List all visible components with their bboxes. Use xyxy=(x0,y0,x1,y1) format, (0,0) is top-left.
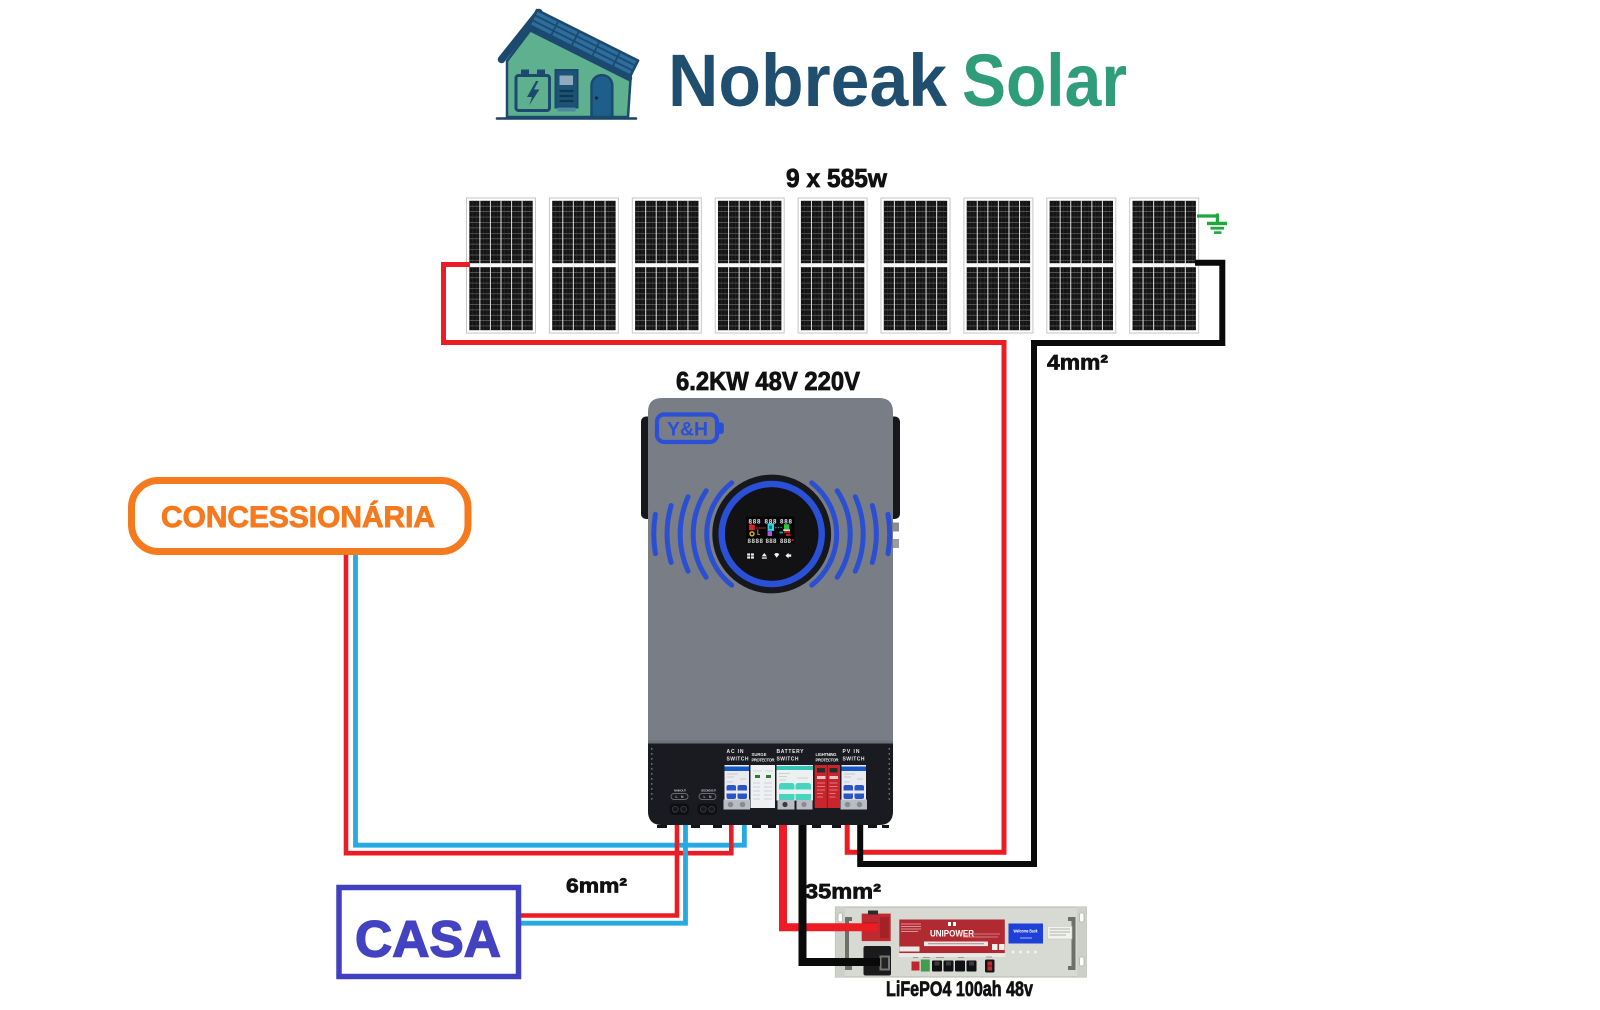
svg-text:6mm²: 6mm² xyxy=(566,876,627,898)
svg-text:4mm²: 4mm² xyxy=(1047,352,1108,375)
svg-text:CASA: CASA xyxy=(355,911,501,968)
svg-text:Nobreak: Nobreak xyxy=(668,39,948,122)
svg-text:PROTECTOR: PROTECTOR xyxy=(752,758,775,763)
svg-text:8888: 8888 xyxy=(748,538,764,545)
svg-text:SECOND OUT: SECOND OUT xyxy=(701,789,716,793)
svg-text:Solar: Solar xyxy=(962,39,1127,122)
svg-text:CONCESSIONÁRIA: CONCESSIONÁRIA xyxy=(161,500,435,534)
svg-text:LiFePO4 100ah 48v: LiFePO4 100ah 48v xyxy=(886,978,1033,1001)
svg-text:BATTERY: BATTERY xyxy=(777,749,805,755)
svg-text:MAIN OUT: MAIN OUT xyxy=(674,789,686,793)
svg-text:9 x 585w: 9 x 585w xyxy=(786,163,888,193)
svg-text:LIGHTNING: LIGHTNING xyxy=(816,752,837,757)
svg-text:888: 888 xyxy=(780,538,792,545)
svg-text:Y&H: Y&H xyxy=(667,419,708,441)
svg-text:6.2KW 48V 220V: 6.2KW 48V 220V xyxy=(676,366,861,396)
svg-text:SWITCH: SWITCH xyxy=(727,757,749,763)
svg-text:AC IN: AC IN xyxy=(727,749,744,755)
svg-text:Welcome Back: Welcome Back xyxy=(1014,929,1039,934)
svg-text:35mm²: 35mm² xyxy=(805,881,881,904)
svg-text:SURGE: SURGE xyxy=(752,752,767,757)
svg-text:PROTECTOR: PROTECTOR xyxy=(816,758,839,763)
svg-text:888: 888 xyxy=(766,538,778,545)
svg-text:PV IN: PV IN xyxy=(843,749,860,755)
svg-text:SWITCH: SWITCH xyxy=(777,757,799,763)
svg-text:SWITCH: SWITCH xyxy=(843,757,865,763)
